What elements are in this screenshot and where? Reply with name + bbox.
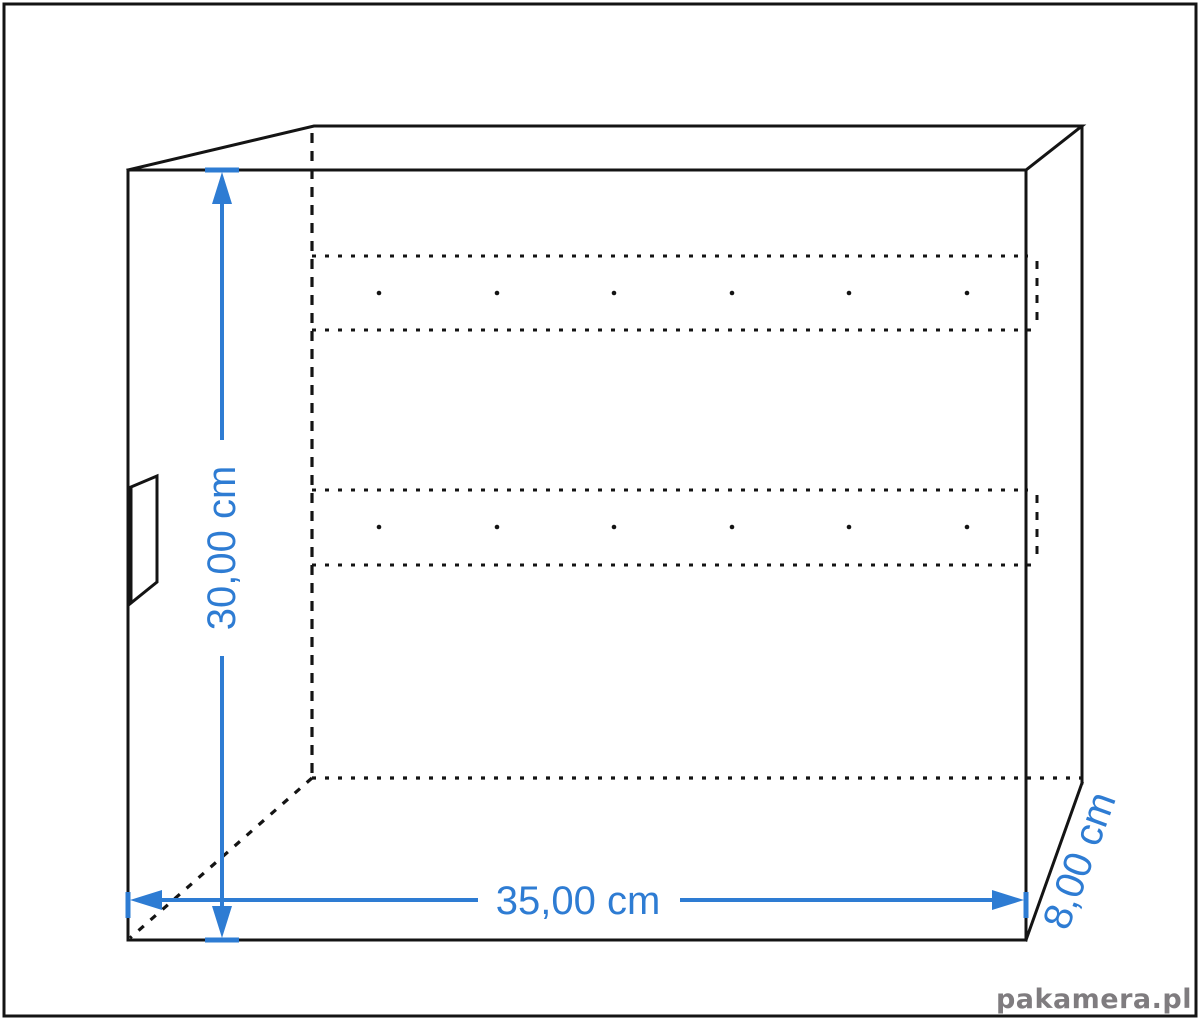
hole-dot xyxy=(495,525,500,530)
height-arrow-up xyxy=(212,172,232,204)
depth-dimension: 8,00 cm xyxy=(1035,786,1125,935)
watermark-logo: pakamera.pl xyxy=(996,984,1192,1015)
box-top-face-edges xyxy=(128,126,1082,170)
drawing-page: 30,00 cm 35,00 cm 8,00 cm pakamera.pl xyxy=(0,0,1200,1020)
box-hidden-edges xyxy=(130,133,1082,938)
hole-dot xyxy=(730,525,735,530)
hole-dot xyxy=(612,291,617,296)
height-dimension: 30,00 cm xyxy=(200,170,244,940)
box-solid-edges xyxy=(128,126,1082,940)
width-dimension-label: 35,00 cm xyxy=(496,879,661,923)
slot-hole-marks xyxy=(377,291,970,530)
box-handle xyxy=(131,476,157,603)
hole-dot xyxy=(847,525,852,530)
hole-dot xyxy=(612,525,617,530)
height-dimension-label: 30,00 cm xyxy=(200,466,244,631)
hole-dot xyxy=(965,525,970,530)
hole-dot xyxy=(377,291,382,296)
slot-rows xyxy=(312,256,1038,565)
depth-dimension-label: 8,00 cm xyxy=(1035,786,1125,935)
hole-dot xyxy=(847,291,852,296)
width-dimension: 35,00 cm xyxy=(128,879,1026,923)
hole-dot xyxy=(495,291,500,296)
box-front-face xyxy=(128,170,1026,940)
dimension-annotations: 30,00 cm 35,00 cm 8,00 cm xyxy=(128,170,1125,940)
hole-dot xyxy=(377,525,382,530)
width-arrow-right xyxy=(992,890,1024,910)
hole-dot xyxy=(730,291,735,296)
height-arrow-down xyxy=(212,906,232,938)
width-arrow-left xyxy=(130,890,162,910)
technical-drawing-canvas: 30,00 cm 35,00 cm 8,00 cm pakamera.pl xyxy=(0,0,1200,1020)
hole-dot xyxy=(965,291,970,296)
